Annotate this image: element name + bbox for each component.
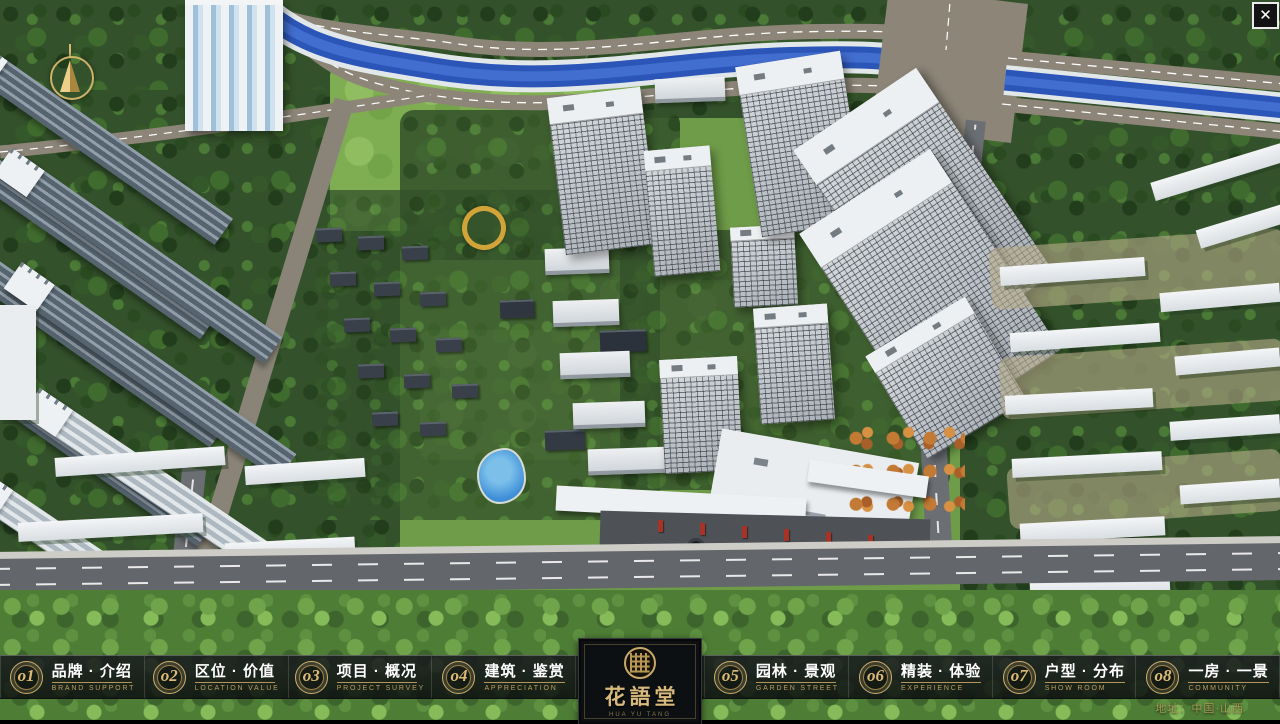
tower-roof <box>644 145 712 172</box>
gate-post <box>742 526 747 538</box>
nav-item-project-overview[interactable]: o3 项目 · 概况 PROJECT SURVEY <box>289 656 433 698</box>
nav-labels: 一房 · 一景 COMMUNITY <box>1188 663 1268 692</box>
nav-labels: 项目 · 概况 PROJECT SURVEY <box>337 663 425 692</box>
white-tower <box>0 305 36 420</box>
compass-arrow-icon <box>60 60 70 92</box>
highrise-tower <box>753 304 835 425</box>
courtyard-villa <box>500 299 535 318</box>
nav-labels: 区位 · 价值 LOCATION VALUE <box>195 663 280 692</box>
courtyard-villa <box>404 374 430 389</box>
swimming-pool <box>477 448 526 504</box>
gate-post <box>868 535 873 547</box>
nav-item-interior-experience[interactable]: o6 精装 · 体验 EXPERIENCE <box>849 656 993 698</box>
nav-label-en: LOCATION VALUE <box>195 685 280 692</box>
courtyard-villa <box>358 364 384 379</box>
nav-label-en: SHOW ROOM <box>1045 685 1107 692</box>
courtyard-villa <box>390 328 416 343</box>
mid-rise-building <box>560 351 631 379</box>
tower-roof <box>753 304 828 329</box>
courtyard-villa <box>344 318 370 333</box>
nav-labels: 园林 · 景观 GARDEN STREET <box>756 663 839 692</box>
nav-label-zh: 区位 · 价值 <box>195 663 275 683</box>
nav-number: o6 <box>867 666 884 686</box>
nav-labels: 品牌 · 介绍 BRAND SUPPORT <box>52 663 136 692</box>
nav-number: o5 <box>722 666 739 686</box>
number-badge: o8 <box>1146 661 1179 694</box>
nav-label-en: EXPERIENCE <box>901 685 964 692</box>
gate-post <box>826 532 831 544</box>
nav-label-en: COMMUNITY <box>1188 685 1247 692</box>
courtyard-villa <box>358 236 384 251</box>
close-button[interactable]: ✕ <box>1252 2 1279 29</box>
nav-number: o8 <box>1154 666 1171 686</box>
nav-label-zh: 品牌 · 介绍 <box>52 663 132 683</box>
courtyard-villa <box>420 422 446 437</box>
nav-item-garden-landscape[interactable]: o5 园林 · 景观 GARDEN STREET <box>704 656 849 698</box>
mid-rise-building <box>588 447 669 476</box>
nav-item-floorplan-distribution[interactable]: o7 户型 · 分布 SHOW ROOM <box>993 656 1137 698</box>
courtyard-villa <box>372 412 398 427</box>
nav-labels: 精装 · 体验 EXPERIENCE <box>901 663 981 692</box>
number-badge: o6 <box>859 661 892 694</box>
gate-post <box>700 523 705 535</box>
number-badge: o5 <box>714 661 747 694</box>
nav-label-zh: 项目 · 概况 <box>337 663 417 683</box>
number-badge: o7 <box>1003 661 1036 694</box>
nav-label-zh: 精装 · 体验 <box>901 663 981 683</box>
nav-item-architecture[interactable]: o4 建筑 · 鉴赏 APPRECIATION <box>432 656 576 698</box>
nav-number: o3 <box>303 666 320 686</box>
address-text: 地址：中国·山西 <box>1155 700 1244 716</box>
nav-label-zh: 户型 · 分布 <box>1045 663 1125 683</box>
brand-subtitle: HUA YU TANG <box>609 712 671 718</box>
mid-rise-building <box>553 299 620 327</box>
nav-item-room-view[interactable]: o8 一房 · 一景 COMMUNITY <box>1136 656 1280 698</box>
nav-number: o7 <box>1011 666 1028 686</box>
brand-seal-icon <box>624 647 656 679</box>
clubhouse-roof <box>600 329 647 353</box>
nav-label-zh: 园林 · 景观 <box>756 663 836 683</box>
mid-rise-building <box>573 401 646 429</box>
highrise-tower <box>547 87 660 255</box>
nav-group-left: o1 品牌 · 介绍 BRAND SUPPORT o2 区位 · 价值 LOCA… <box>0 656 576 698</box>
close-icon: ✕ <box>1259 7 1272 24</box>
courtyard-villa <box>330 272 356 287</box>
nav-item-location-value[interactable]: o2 区位 · 价值 LOCATION VALUE <box>145 656 289 698</box>
nav-labels: 建筑 · 鉴赏 APPRECIATION <box>484 663 564 692</box>
nav-label-zh: 一房 · 一景 <box>1188 663 1268 683</box>
gate-post <box>658 520 663 532</box>
nav-label-en: PROJECT SURVEY <box>337 685 425 692</box>
number-badge: o2 <box>153 661 186 694</box>
courtyard-villa <box>420 292 446 307</box>
highrise-tower <box>644 145 721 276</box>
gate-post <box>784 529 789 541</box>
brand-name: 花語堂 <box>601 681 680 711</box>
nav-item-brand-intro[interactable]: o1 品牌 · 介绍 BRAND SUPPORT <box>0 656 145 698</box>
nav-label-en: APPRECIATION <box>484 685 557 692</box>
clubhouse-roof <box>545 429 586 450</box>
nav-number: o2 <box>161 666 178 686</box>
tower-roof <box>659 356 738 379</box>
courtyard-villa <box>316 228 342 243</box>
nav-group-right: o5 园林 · 景观 GARDEN STREET o6 精装 · 体验 EXPE… <box>704 656 1280 698</box>
number-badge: o3 <box>295 661 328 694</box>
number-badge: o1 <box>10 661 43 694</box>
nav-label-en: GARDEN STREET <box>756 685 839 692</box>
nav-label-zh: 建筑 · 鉴赏 <box>484 663 564 683</box>
nav-labels: 户型 · 分布 SHOW ROOM <box>1045 663 1125 692</box>
nav-number: o4 <box>450 666 467 686</box>
courtyard-villa <box>402 246 428 261</box>
courtyard-villa <box>436 338 462 353</box>
nav-label-en: BRAND SUPPORT <box>52 685 136 692</box>
courtyard-villa <box>452 384 478 399</box>
compass-arrow-icon <box>70 60 80 92</box>
courtyard-villa <box>374 282 400 297</box>
nav-number: o1 <box>18 666 35 686</box>
glass-tower <box>185 0 283 131</box>
compass-north-indicator <box>48 44 92 100</box>
number-badge: o4 <box>442 661 475 694</box>
aerial-masterplan-render <box>0 0 1280 720</box>
logo-panel[interactable]: 花語堂 HUA YU TANG <box>579 639 701 724</box>
mid-rise-building <box>655 77 726 103</box>
